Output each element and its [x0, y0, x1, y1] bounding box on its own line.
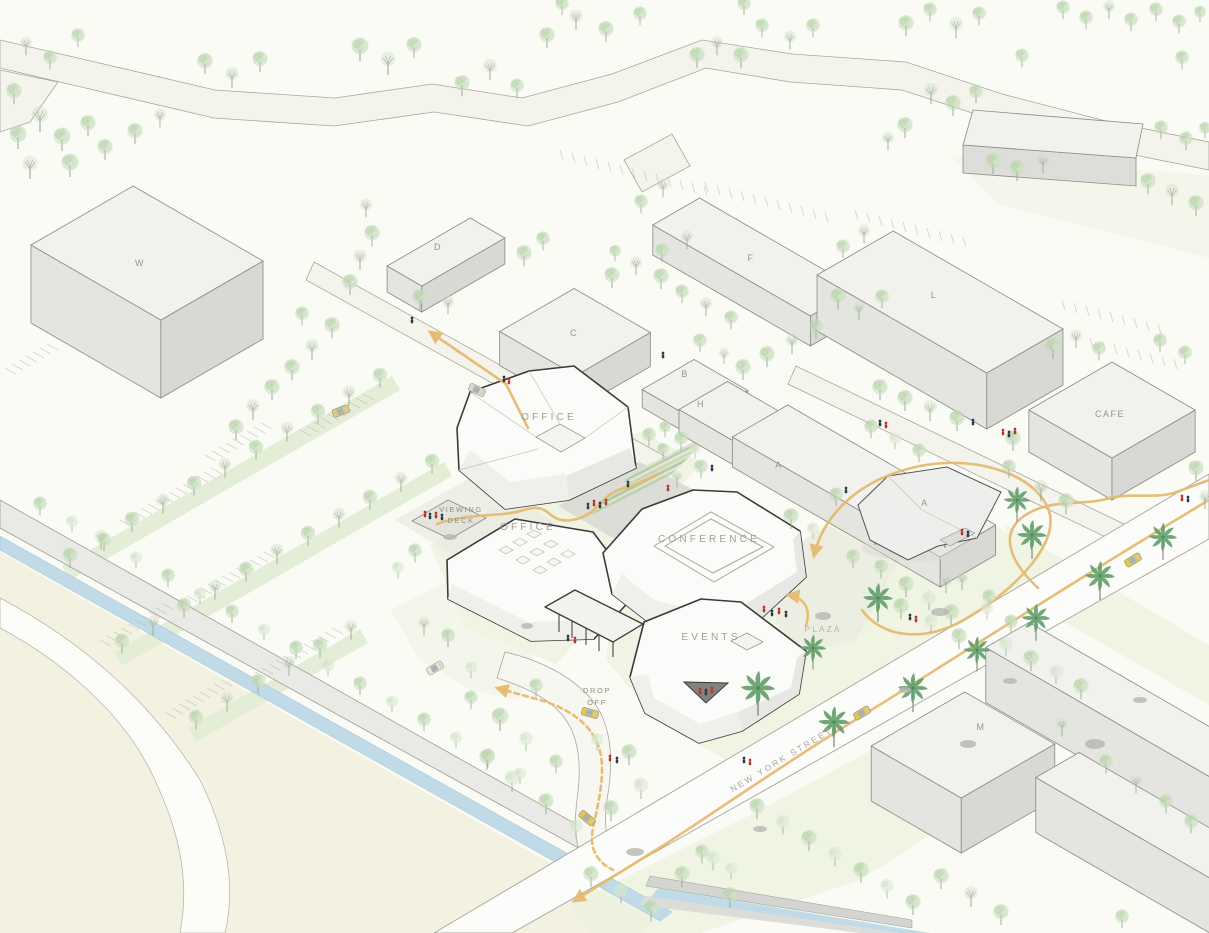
person — [915, 616, 918, 623]
label-pavilion-a: A — [921, 498, 929, 508]
person — [599, 502, 602, 509]
label-drop-off-1: DROP — [583, 686, 611, 695]
person — [711, 687, 714, 694]
site-plan-drawing: W D C B H A F L M A CAFE OFFICE OFFICE C… — [0, 0, 1209, 933]
person — [763, 606, 766, 613]
label-building-d: D — [434, 242, 442, 252]
person — [508, 378, 511, 385]
person — [967, 531, 970, 538]
person — [1008, 431, 1011, 438]
label-building-b: B — [681, 369, 689, 379]
site-plan: W D C B H A F L M A CAFE OFFICE OFFICE C… — [0, 0, 1209, 933]
person — [699, 688, 702, 695]
label-conference: CONFERENCE — [658, 534, 760, 545]
person — [587, 503, 590, 510]
person — [424, 511, 427, 518]
person — [616, 757, 619, 764]
label-viewing-deck-2: DECK — [447, 516, 474, 525]
rock — [521, 623, 533, 629]
person — [441, 514, 444, 521]
label-building-m: M — [977, 722, 986, 732]
person — [749, 759, 752, 766]
person — [778, 608, 781, 615]
label-building-h: H — [697, 399, 705, 409]
rock — [815, 612, 831, 620]
person — [785, 611, 788, 618]
person — [1002, 429, 1005, 436]
person — [1014, 428, 1017, 435]
label-drop-off-2: OFF — [587, 698, 607, 707]
person — [627, 481, 630, 488]
person — [435, 512, 438, 519]
person — [609, 755, 612, 762]
label-plaza: PLAZA — [805, 624, 842, 634]
person — [972, 419, 975, 426]
rock — [443, 534, 457, 540]
label-office-north: OFFICE — [521, 412, 577, 423]
person — [743, 757, 746, 764]
rock — [1085, 739, 1105, 749]
person — [429, 513, 432, 520]
label-building-c: C — [570, 328, 578, 338]
person — [605, 499, 608, 506]
rock — [753, 826, 767, 832]
person — [705, 689, 708, 696]
rock — [1003, 678, 1017, 684]
person — [411, 317, 414, 324]
person — [662, 352, 665, 359]
person — [879, 420, 882, 427]
person — [771, 610, 774, 617]
label-viewing-deck-1: VIEWING — [439, 505, 483, 514]
rock — [899, 687, 911, 693]
person — [711, 465, 714, 472]
person — [1187, 496, 1190, 503]
rock — [960, 740, 976, 748]
person — [574, 637, 577, 644]
person — [961, 529, 964, 536]
person — [1181, 495, 1184, 502]
rock — [1133, 697, 1147, 703]
person — [909, 614, 912, 621]
rock — [931, 608, 949, 616]
label-building-l: L — [931, 290, 938, 300]
person — [593, 500, 596, 507]
person — [845, 487, 848, 494]
label-building-f: F — [748, 253, 755, 263]
label-events: EVENTS — [681, 632, 740, 643]
label-building-a: A — [775, 460, 783, 470]
person — [503, 376, 506, 383]
label-building-w: W — [135, 258, 145, 268]
person — [667, 485, 670, 492]
person — [567, 635, 570, 642]
rock — [626, 848, 644, 856]
label-cafe: CAFE — [1095, 409, 1125, 419]
person — [885, 422, 888, 429]
label-office-south: OFFICE — [500, 522, 556, 533]
